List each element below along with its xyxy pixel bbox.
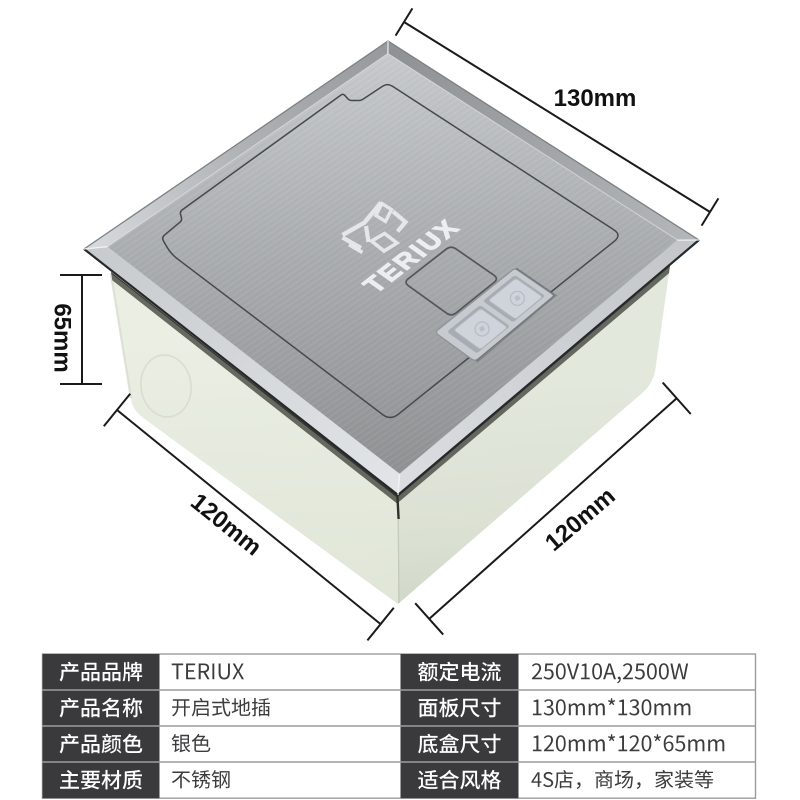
svg-text:130mm: 130mm [554,85,637,112]
svg-text:65mm: 65mm [49,303,76,372]
